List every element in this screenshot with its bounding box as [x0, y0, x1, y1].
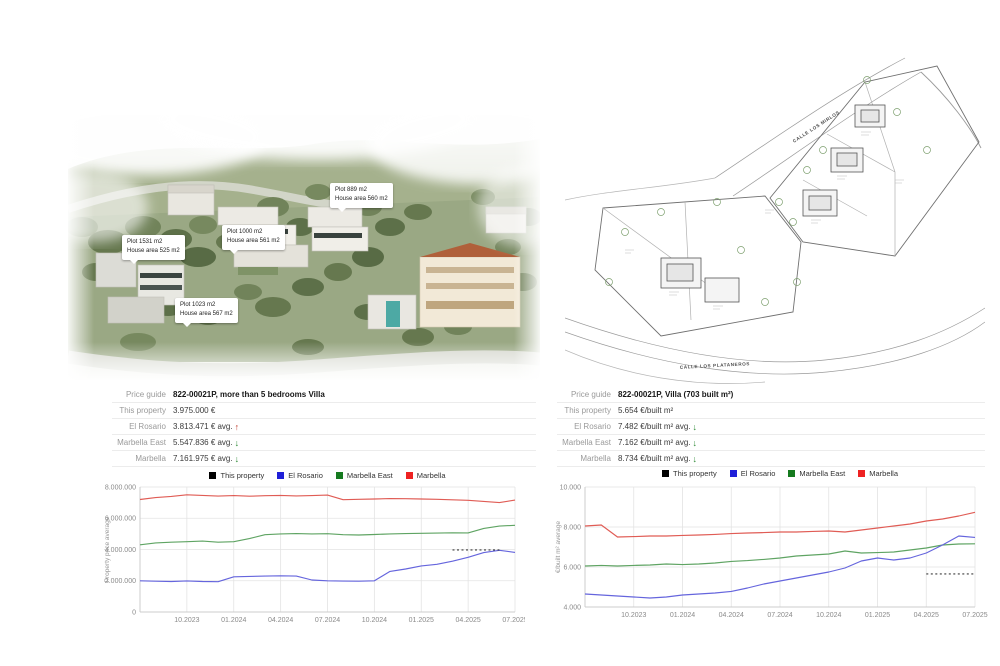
legend-item: Marbella East: [788, 469, 845, 478]
chart-svg: 4.0006.0008.00010.00010.202301.202404.20…: [550, 480, 990, 632]
street-label-bottom: CALLE LOS PLATANEROS: [680, 361, 750, 370]
svg-text:10.2024: 10.2024: [362, 617, 387, 624]
svg-text:07.2024: 07.2024: [767, 612, 792, 619]
price-row-value: 3.813.471 € avg.: [173, 422, 233, 431]
legend-label: El Rosario: [741, 469, 776, 478]
svg-text:01.2025: 01.2025: [409, 617, 434, 624]
price-row: El Rosario3.813.471 € avg.↑: [112, 419, 536, 435]
street-label-top: CALLE LOS MIRLOS: [792, 110, 841, 144]
chart-legend: This propertyEl RosarioMarbella EastMarb…: [550, 467, 990, 480]
svg-text:04.2024: 04.2024: [719, 612, 744, 619]
svg-text:01.2024: 01.2024: [221, 617, 246, 624]
page: Plot 1531 m2House area 525 m2Plot 1000 m…: [0, 0, 1000, 666]
legend-item: El Rosario: [730, 469, 776, 478]
legend-swatch-icon: [277, 472, 284, 479]
price-row-value: 822-00021P, more than 5 bedrooms Villa: [173, 390, 325, 399]
price-row-value: 3.975.000 €: [173, 406, 215, 415]
price-chart-right: This propertyEl RosarioMarbella EastMarb…: [550, 467, 990, 637]
trend-down-icon: ↓: [692, 454, 697, 464]
svg-text:8.000: 8.000: [563, 524, 581, 531]
legend-label: Marbella East: [799, 469, 845, 478]
legend-item: This property: [209, 471, 264, 480]
svg-text:10.2023: 10.2023: [621, 612, 646, 619]
legend-swatch-icon: [662, 470, 669, 477]
svg-text:6.000: 6.000: [563, 564, 581, 571]
legend-swatch-icon: [406, 472, 413, 479]
price-row: Marbella East5.547.836 € avg.↓: [112, 435, 536, 451]
price-row-label: Marbella East: [557, 438, 611, 447]
svg-text:10.2024: 10.2024: [816, 612, 841, 619]
legend-label: This property: [673, 469, 717, 478]
price-row-value: 7.162 €/built m² avg.: [618, 438, 690, 447]
chart-plot-area: 02.000.0004.000.0006.000.0008.000.00010.…: [95, 482, 525, 639]
svg-text:04.2025: 04.2025: [455, 617, 480, 624]
chart-svg: 02.000.0004.000.0006.000.0008.000.00010.…: [95, 482, 525, 634]
legend-label: El Rosario: [288, 471, 323, 480]
price-row-label: This property: [557, 406, 611, 415]
svg-text:01.2024: 01.2024: [670, 612, 695, 619]
site-plan-drawing: CALLE LOS MIRLOS CALLE LOS PLATANEROS: [565, 50, 985, 390]
legend-item: Marbella: [858, 469, 898, 478]
svg-text:0: 0: [132, 609, 136, 616]
svg-text:04.2025: 04.2025: [914, 612, 939, 619]
price-row: Marbella East7.162 €/built m² avg.↓: [557, 435, 985, 451]
price-row-label: This property: [112, 406, 166, 415]
legend-label: This property: [220, 471, 264, 480]
price-row-label: Price guide: [557, 390, 611, 399]
legend-swatch-icon: [858, 470, 865, 477]
site-plan: CALLE LOS MIRLOS CALLE LOS PLATANEROS: [565, 50, 985, 390]
price-row-value: 5.547.836 € avg.: [173, 438, 233, 447]
chart-legend: This propertyEl RosarioMarbella EastMarb…: [95, 469, 525, 482]
price-row: El Rosario7.482 €/built m² avg.↓: [557, 419, 985, 435]
legend-label: Marbella East: [347, 471, 393, 480]
price-row: This property3.975.000 €: [112, 403, 536, 419]
y-axis-title: €/built m² average: [555, 521, 562, 573]
legend-label: Marbella: [417, 471, 446, 480]
legend-item: Marbella East: [336, 471, 393, 480]
svg-text:07.2025: 07.2025: [502, 617, 525, 624]
legend-swatch-icon: [209, 472, 216, 479]
svg-text:10.000: 10.000: [560, 484, 582, 491]
svg-text:04.2024: 04.2024: [268, 617, 293, 624]
price-row-value: 5.654 €/built m²: [618, 406, 673, 415]
price-guide-table-left: Price guide822-00021P, more than 5 bedro…: [112, 387, 536, 467]
plot-label: Plot 1000 m2House area 561 m2: [222, 225, 285, 250]
price-row-label: Price guide: [112, 390, 166, 399]
trend-down-icon: ↓: [235, 438, 240, 448]
price-row-label: Marbella: [112, 454, 166, 463]
svg-text:01.2025: 01.2025: [865, 612, 890, 619]
legend-item: This property: [662, 469, 717, 478]
price-row: Price guide822-00021P, Villa (703 built …: [557, 387, 985, 403]
plot-label: Plot 889 m2House area 560 m2: [330, 183, 393, 208]
price-row-value: 822-00021P, Villa (703 built m²): [618, 390, 733, 399]
price-row: This property5.654 €/built m²: [557, 403, 985, 419]
aerial-image: [68, 57, 540, 380]
legend-swatch-icon: [730, 470, 737, 477]
price-row-label: Marbella East: [112, 438, 166, 447]
price-row: Price guide822-00021P, more than 5 bedro…: [112, 387, 536, 403]
trend-down-icon: ↓: [235, 454, 240, 464]
trend-up-icon: ↑: [235, 422, 240, 432]
svg-text:8.000.000: 8.000.000: [105, 484, 136, 491]
price-row-value: 8.734 €/built m² avg.: [618, 454, 690, 463]
price-row-label: El Rosario: [557, 422, 611, 431]
trend-down-icon: ↓: [692, 422, 697, 432]
price-chart-left: This propertyEl RosarioMarbella EastMarb…: [95, 469, 525, 639]
price-row-value: 7.161.975 € avg.: [173, 454, 233, 463]
chart-plot-area: 4.0006.0008.00010.00010.202301.202404.20…: [550, 480, 990, 637]
price-row-label: Marbella: [557, 454, 611, 463]
plot-label: Plot 1531 m2House area 525 m2: [122, 235, 185, 260]
legend-swatch-icon: [788, 470, 795, 477]
price-row: Marbella7.161.975 € avg.↓: [112, 451, 536, 467]
aerial-render: Plot 1531 m2House area 525 m2Plot 1000 m…: [68, 57, 540, 380]
legend-swatch-icon: [336, 472, 343, 479]
svg-text:07.2025: 07.2025: [962, 612, 987, 619]
price-row-value: 7.482 €/built m² avg.: [618, 422, 690, 431]
price-row-label: El Rosario: [112, 422, 166, 431]
legend-label: Marbella: [869, 469, 898, 478]
plot-label: Plot 1023 m2House area 567 m2: [175, 298, 238, 323]
svg-text:10.2023: 10.2023: [174, 617, 199, 624]
svg-text:07.2024: 07.2024: [315, 617, 340, 624]
legend-item: El Rosario: [277, 471, 323, 480]
y-axis-title: Property price average: [104, 516, 111, 582]
legend-item: Marbella: [406, 471, 446, 480]
price-row: Marbella8.734 €/built m² avg.↓: [557, 451, 985, 467]
price-guide-table-right: Price guide822-00021P, Villa (703 built …: [557, 387, 985, 467]
svg-text:4.000: 4.000: [563, 604, 581, 611]
trend-down-icon: ↓: [692, 438, 697, 448]
